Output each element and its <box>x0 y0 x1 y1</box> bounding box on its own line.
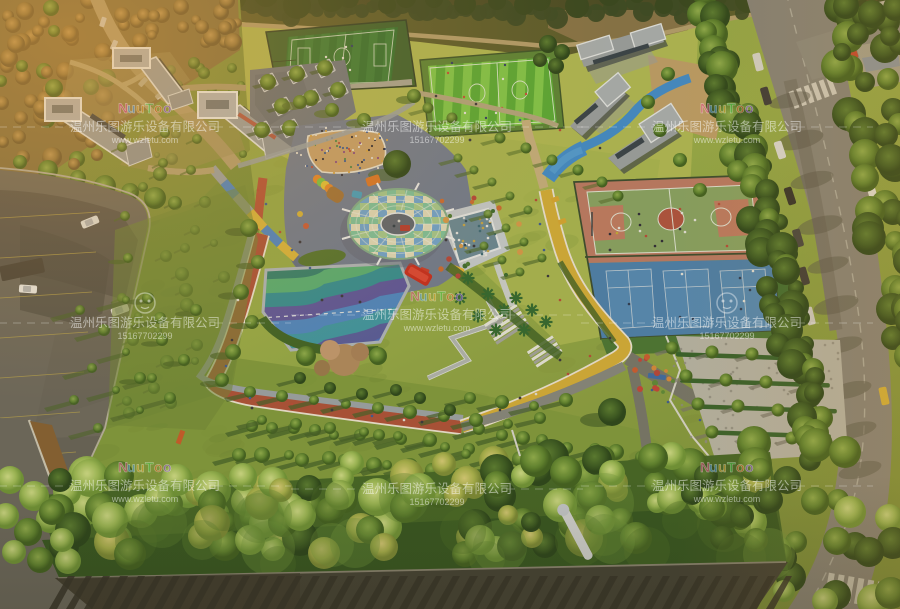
svg-text:T: T <box>145 100 154 116</box>
svg-text:15167702299: 15167702299 <box>699 331 754 341</box>
svg-text:www.wzletu.com: www.wzletu.com <box>111 494 179 504</box>
svg-text:o: o <box>163 459 172 475</box>
svg-text:www.wzletu.com: www.wzletu.com <box>403 323 471 333</box>
svg-text:u: u <box>127 100 136 116</box>
svg-text:温州乐图游乐设备有限公司: 温州乐图游乐设备有限公司 <box>70 478 220 493</box>
svg-text:u: u <box>127 459 136 475</box>
svg-text:u: u <box>428 288 437 304</box>
svg-text:T: T <box>727 100 736 116</box>
svg-text:o: o <box>154 100 163 116</box>
svg-text:o: o <box>154 459 163 475</box>
svg-text:T: T <box>437 288 446 304</box>
svg-text:T: T <box>727 459 736 475</box>
svg-text:o: o <box>163 100 172 116</box>
svg-text:o: o <box>745 100 754 116</box>
svg-text:o: o <box>455 288 464 304</box>
svg-text:u: u <box>718 459 727 475</box>
svg-text:温州乐图游乐设备有限公司: 温州乐图游乐设备有限公司 <box>70 119 220 134</box>
svg-text:温州乐图游乐设备有限公司: 温州乐图游乐设备有限公司 <box>70 315 220 330</box>
svg-text:www.wzletu.com: www.wzletu.com <box>693 494 761 504</box>
svg-text:u: u <box>718 100 727 116</box>
svg-text:u: u <box>136 100 145 116</box>
svg-text:温州乐图游乐设备有限公司: 温州乐图游乐设备有限公司 <box>362 307 512 322</box>
svg-text:o: o <box>745 459 754 475</box>
svg-text:www.wzletu.com: www.wzletu.com <box>693 135 761 145</box>
svg-text:15167702299: 15167702299 <box>117 331 172 341</box>
svg-text:15167702299: 15167702299 <box>409 135 464 145</box>
svg-text:u: u <box>709 100 718 116</box>
svg-text:15167702299: 15167702299 <box>409 497 464 507</box>
svg-text:温州乐图游乐设备有限公司: 温州乐图游乐设备有限公司 <box>362 481 512 496</box>
svg-text:温州乐图游乐设备有限公司: 温州乐图游乐设备有限公司 <box>652 119 802 134</box>
svg-text:o: o <box>736 100 745 116</box>
svg-text:o: o <box>446 288 455 304</box>
svg-text:温州乐图游乐设备有限公司: 温州乐图游乐设备有限公司 <box>652 478 802 493</box>
svg-text:温州乐图游乐设备有限公司: 温州乐图游乐设备有限公司 <box>362 119 512 134</box>
svg-text:T: T <box>145 459 154 475</box>
svg-text:o: o <box>736 459 745 475</box>
svg-text:www.wzletu.com: www.wzletu.com <box>111 135 179 145</box>
svg-text:u: u <box>419 288 428 304</box>
svg-text:温州乐图游乐设备有限公司: 温州乐图游乐设备有限公司 <box>652 315 802 330</box>
svg-text:u: u <box>709 459 718 475</box>
svg-text:u: u <box>136 459 145 475</box>
